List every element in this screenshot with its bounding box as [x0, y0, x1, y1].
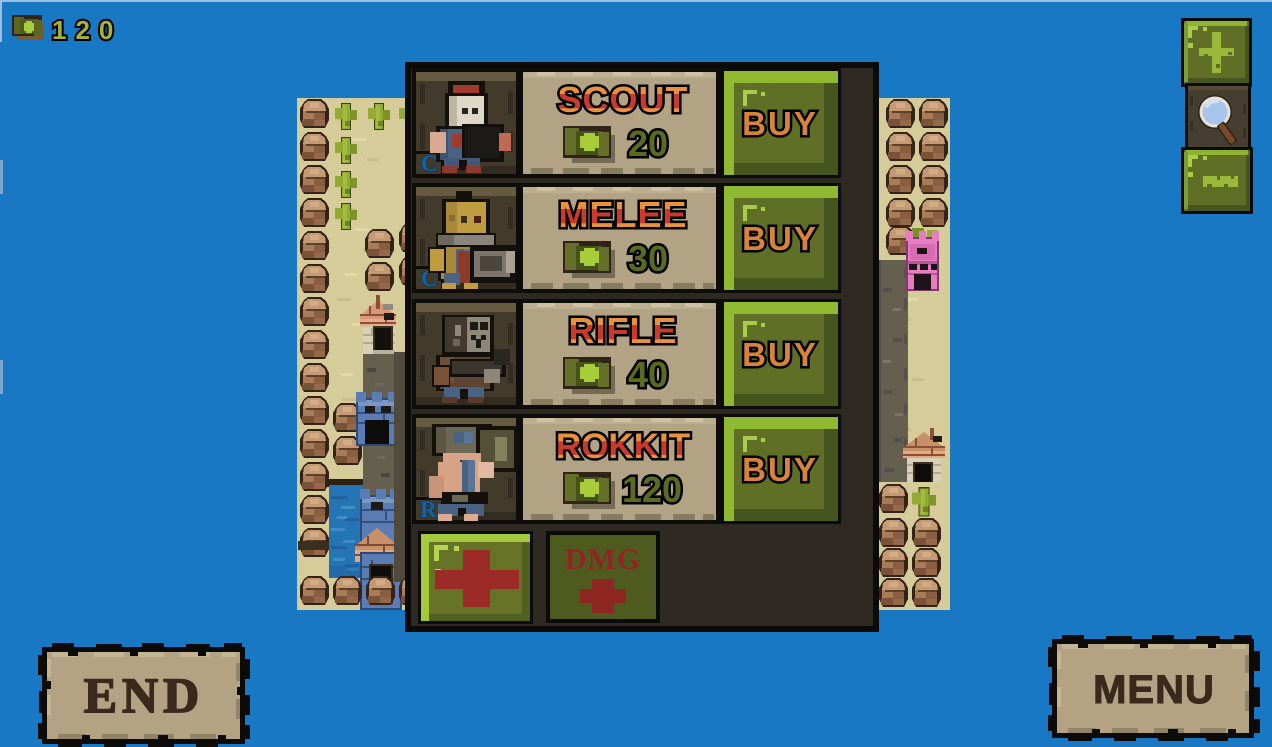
svg-text:MELEE: MELEE — [558, 194, 687, 235]
svg-text:20: 20 — [628, 123, 668, 164]
svg-text:40: 40 — [628, 354, 668, 395]
svg-text:DMG: DMG — [565, 543, 641, 576]
svg-text:RIFLE: RIFLE — [569, 310, 678, 351]
svg-text:MENU: MENU — [1093, 668, 1215, 712]
svg-text:END: END — [84, 667, 205, 723]
svg-text:30: 30 — [628, 238, 668, 279]
svg-text:120: 120 — [52, 15, 122, 45]
svg-text:R: R — [420, 497, 437, 522]
svg-text:ROKKIT: ROKKIT — [556, 427, 690, 466]
svg-text:C: C — [421, 151, 438, 176]
svg-text:120: 120 — [622, 469, 682, 510]
svg-text:SCOUT: SCOUT — [558, 79, 689, 120]
